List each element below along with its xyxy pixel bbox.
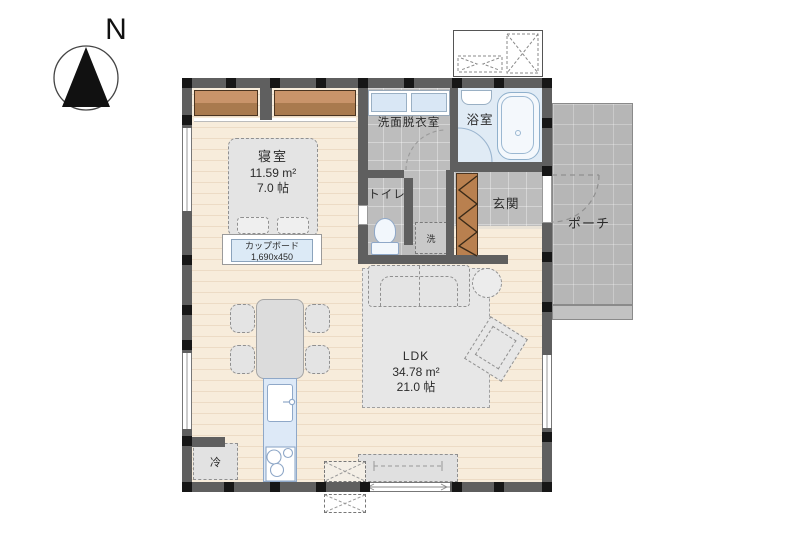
side-table [472, 268, 502, 298]
wall-ldk-north [358, 255, 508, 264]
closet-right [274, 90, 356, 116]
wall-fridge-stub [187, 437, 225, 447]
column-marker [224, 482, 234, 492]
cupboard-size: 1,690x450 [232, 252, 312, 263]
window-kitchen-west [182, 353, 192, 429]
column-marker [270, 78, 280, 88]
column-marker [542, 252, 552, 262]
column-marker [182, 436, 192, 446]
column-marker [360, 482, 370, 492]
refrigerator-label: 冷 [210, 454, 221, 470]
column-marker [494, 78, 504, 88]
dining-table [256, 299, 304, 379]
window-bedroom-west [182, 128, 192, 211]
vanity-basin-right [411, 93, 447, 112]
ac-outdoor-unit [324, 494, 366, 513]
washing-machine: 洗 [415, 222, 447, 254]
wall-toilet-top [368, 170, 404, 178]
column-marker [182, 482, 192, 492]
bedroom-name: 寝室 [223, 149, 323, 166]
ldk-name: LDK [366, 349, 466, 365]
refrigerator: 冷 [193, 443, 238, 480]
column-marker [542, 482, 552, 492]
bed-pillow-right [277, 217, 309, 234]
floor-plan: N カップボード 1,690x450 冷 [0, 0, 800, 540]
column-marker [182, 115, 192, 125]
window-living-east [542, 355, 552, 428]
bed-pillow-left [237, 217, 269, 234]
closet-left [194, 90, 258, 116]
washroom-label: 洗面脱衣室 [368, 116, 450, 131]
column-marker [542, 302, 552, 312]
dining-chair [305, 304, 330, 333]
column-marker [542, 78, 552, 88]
column-marker [452, 482, 462, 492]
dining-chair [230, 304, 255, 333]
water-heater-unit [453, 30, 543, 77]
bathtub-inner [501, 96, 534, 154]
shoe-cabinet [456, 173, 478, 257]
bath-counter [461, 90, 492, 105]
porch-area [552, 103, 633, 305]
column-marker [316, 78, 326, 88]
column-marker [182, 340, 192, 350]
column-marker [182, 305, 192, 315]
bathtub [497, 92, 540, 160]
column-marker [226, 78, 236, 88]
column-marker [316, 482, 326, 492]
column-marker [542, 166, 552, 176]
porch-step [552, 305, 633, 320]
bedroom-label: 寝室 11.59 m² 7.0 帖 [223, 149, 323, 197]
ac-indoor-unit [324, 461, 366, 482]
outer-wall-right [542, 78, 552, 492]
wall-bedroom-washroom-lower [358, 225, 368, 257]
kitchen-sink [267, 384, 293, 422]
toilet-door [358, 205, 368, 225]
toilet-tank [371, 242, 399, 255]
bedroom-area-m2: 11.59 m² [223, 166, 323, 182]
column-marker [270, 482, 280, 492]
entrance-label: 玄関 [485, 196, 527, 212]
column-marker [494, 482, 504, 492]
toilet-label: トイレ [363, 188, 411, 203]
wall-laundry-entrance [446, 170, 454, 257]
tv-board [358, 454, 458, 482]
ldk-area-m2: 34.78 m² [366, 365, 466, 381]
column-marker [452, 78, 462, 88]
closet-track [194, 118, 356, 122]
closet-divider-wall [260, 88, 272, 120]
ldk-area-tatami: 21.0 帖 [366, 380, 466, 396]
cupboard-name: カップボード [232, 241, 312, 252]
dining-chair [230, 345, 255, 374]
bedroom-area-tatami: 7.0 帖 [223, 181, 323, 197]
dining-chair [305, 345, 330, 374]
window-living-south [365, 482, 450, 492]
column-marker [182, 255, 192, 265]
column-marker [542, 118, 552, 128]
entrance-door-opening [542, 175, 552, 223]
column-marker [358, 78, 368, 88]
vanity-basin-left [371, 93, 407, 112]
washing-machine-label: 洗 [426, 232, 435, 245]
wall-bathroom-bottom [450, 162, 542, 172]
column-marker [542, 432, 552, 442]
accent-chair-seat [475, 326, 517, 370]
ldk-label: LDK 34.78 m² 21.0 帖 [366, 349, 466, 396]
compass-icon [48, 41, 124, 117]
cupboard-label: カップボード 1,690x450 [231, 239, 313, 262]
toilet-bowl [374, 218, 396, 244]
porch-label: ポーチ [562, 216, 616, 233]
column-marker [404, 78, 414, 88]
sofa-divider [419, 266, 420, 306]
bathroom-label: 浴室 [460, 112, 500, 128]
column-marker [182, 78, 192, 88]
wall-washroom-bathroom [450, 88, 458, 172]
